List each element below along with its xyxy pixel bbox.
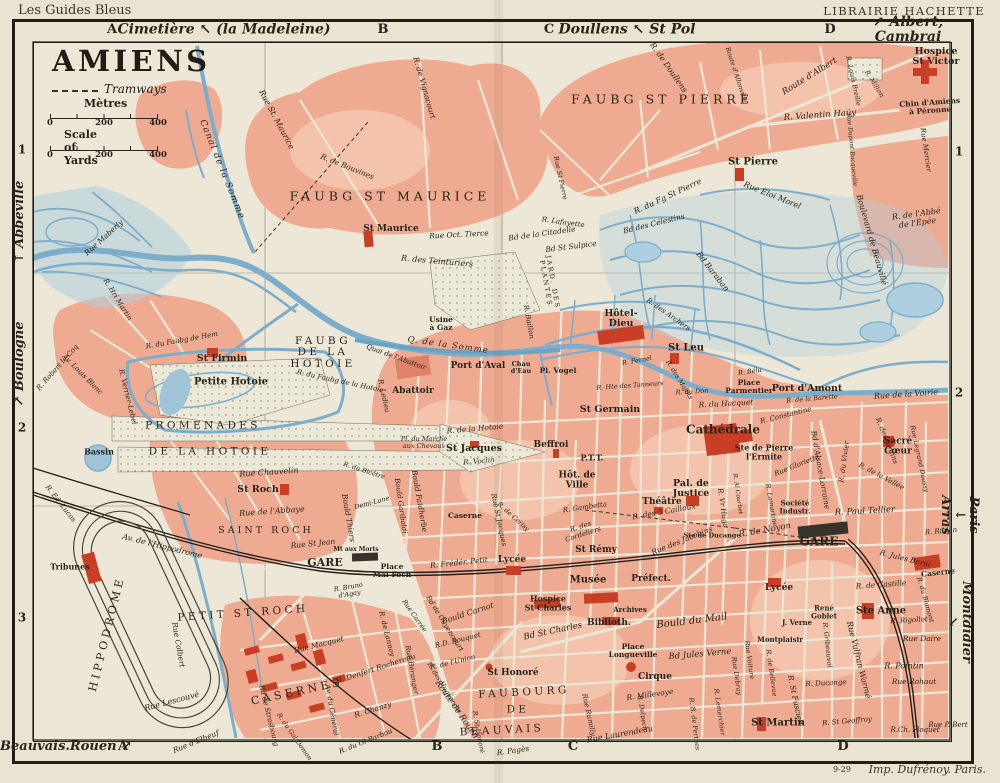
- map-label: Hospice St Charles: [525, 594, 571, 611]
- map-label: René Goblet: [811, 604, 837, 619]
- map-label: Rue Dupont Bacqueville: [845, 113, 858, 187]
- map-label: Rue Carrée: [400, 599, 427, 634]
- map-label: R. Jules Barni: [879, 549, 932, 569]
- map-label: CASERNES: [250, 676, 344, 707]
- map-label: Place Parmentier: [725, 379, 772, 395]
- map-label: JARD. DES PLANTES: [537, 255, 560, 311]
- map-label: R. Milton: [863, 69, 885, 99]
- map-label: Rue Daire: [903, 635, 941, 643]
- map-label: R. de la Vallée: [857, 462, 905, 492]
- map-label: R. B. de Perthes: [687, 697, 700, 750]
- map-label: R. Delpech: [636, 695, 648, 732]
- map-label: FAUBG ST PIERRE: [571, 92, 753, 106]
- grid-letter: D: [837, 740, 848, 754]
- map-label: Rue Béranger: [403, 645, 419, 695]
- scale-tick: 0: [47, 118, 53, 128]
- map-label: R. de Lannoy: [377, 610, 396, 657]
- map-label: R. Gribeauval: [821, 622, 833, 668]
- map-label: Petite Hotoie: [194, 378, 268, 389]
- map-label: R. Ed. Lucas: [43, 484, 76, 524]
- map-label: Bd d'Alsace-Lorraine: [809, 430, 831, 510]
- map-label: R. St Fuscien: [786, 674, 804, 725]
- map-label: Chau d'Eau: [511, 361, 531, 375]
- metres-label: Mètres: [84, 97, 127, 110]
- map-label: St Pierre: [728, 158, 778, 169]
- map-label: Sacré Cœur: [884, 437, 912, 456]
- map-label: Ste Anne: [856, 607, 906, 618]
- tramway-legend-symbol: [52, 90, 98, 92]
- map-label: Rue Macquet: [293, 635, 344, 655]
- map-label: Usine à Gaz: [429, 316, 453, 332]
- map-label: R. Valentin Haüy: [784, 109, 857, 123]
- map-label: DE: [507, 704, 530, 715]
- grid-letter: D: [824, 23, 835, 37]
- map-label: Bould Garibaldi: [392, 478, 407, 534]
- map-label: R. du Bicêtre: [342, 461, 385, 481]
- map-label: J. Verne: [782, 619, 812, 627]
- map-label: Rue St. Maurice: [257, 89, 296, 151]
- map-label: BEAUVAIS: [460, 723, 545, 739]
- map-label: Hospice St Victor: [913, 47, 960, 68]
- map-label: R. du Hacquet: [698, 399, 753, 410]
- map-label: R. de Castille: [855, 579, 906, 591]
- map-label: R. Pointin: [884, 663, 924, 672]
- map-label: Bd St Sulpice: [545, 240, 597, 254]
- map-label: Rue Rumilly: [580, 693, 596, 737]
- map-label: Rue Lescouvé: [144, 691, 201, 714]
- map-label: R. des Majots: [664, 359, 694, 401]
- grid-letter: B: [432, 740, 443, 754]
- map-label: Rue de l'Abbaye: [239, 505, 305, 518]
- map-label: Pl. du Marché aux Chevaux: [401, 436, 447, 450]
- map-label: Société Industr.: [779, 499, 810, 514]
- map-label: Rue P. Bert: [928, 722, 967, 730]
- map-label: St Germain: [580, 405, 640, 415]
- map-label: R. Fernel: [621, 355, 652, 367]
- map-label: Musée: [570, 576, 607, 587]
- map-label: R. Ledieu: [376, 379, 390, 414]
- map-label: Préfect.: [631, 575, 671, 585]
- scale-tick: 400: [149, 118, 167, 128]
- map-label: R. du Fg St Pierre: [633, 178, 703, 217]
- map-label: R. de la Hotoie: [446, 422, 503, 435]
- map-label: Av. du Général: [323, 684, 339, 736]
- map-label: Biblioth.: [587, 619, 631, 629]
- map-label: GARE: [307, 557, 342, 569]
- map-label: Rue Legrand Daussy: [908, 425, 929, 493]
- map-label: R. des Archers: [645, 297, 692, 333]
- map-label: Archives: [613, 606, 647, 614]
- map-label: Cathédrale: [686, 424, 760, 437]
- map-label: Rue Rohaut: [892, 678, 937, 686]
- grid-letter: B: [378, 23, 389, 37]
- map-label: St Roch: [237, 485, 278, 495]
- map-label: Rue Laurendeau: [586, 725, 654, 745]
- map-label: R. Lafayette: [541, 216, 585, 229]
- map-label: R. Chanzy: [353, 700, 392, 720]
- map-label: St Honoré: [487, 669, 538, 679]
- map-label: R. Constantine: [760, 406, 813, 426]
- map-label: Hôtel- Dieu: [604, 309, 637, 330]
- edge-destination: Doullens ↖ St Pol: [559, 22, 696, 37]
- map-label: DE LA HOTOIE: [149, 446, 272, 457]
- scale-tick: 200: [95, 118, 113, 128]
- map-label: Caserne: [448, 512, 482, 520]
- map-label: R. Paul Tellier: [835, 506, 896, 518]
- map-label: Q. de la Somme: [407, 336, 489, 356]
- grid-letter: A: [107, 23, 117, 37]
- edge-destination: ↗ Boulogne: [13, 322, 27, 407]
- map-label: Rue d'Elbeuf: [172, 729, 220, 755]
- map-label: Hôt. de Ville: [559, 471, 596, 490]
- edge-destination: Paris ↓ Arras: [938, 495, 980, 536]
- map-label: Rue St Pierre: [552, 156, 568, 201]
- map-label: Bd St Charles: [523, 621, 583, 642]
- edge-destination: Montdidier ↘: [945, 581, 973, 663]
- scale-tick: 0: [47, 150, 53, 160]
- map-label: Rue de la Voirie: [874, 388, 939, 401]
- map-label: R. des 3 Cailloux: [632, 502, 696, 521]
- map-label: R. St Honoré: [471, 710, 485, 753]
- map-label: Rue Oct. Tierce: [429, 229, 489, 240]
- map-label: Rue Chauvelin: [239, 467, 299, 480]
- map-label: Route d'Albert: [781, 56, 839, 97]
- edge-destination: ↗ Albert, Cambrai: [862, 15, 954, 45]
- map-label: Ste de Pierre l'Ermite: [735, 443, 793, 460]
- map-label: Bassin: [84, 448, 114, 457]
- map-label: Bd Baraban: [694, 251, 730, 294]
- map-label: Rue des Jacobins: [650, 525, 713, 557]
- map-label: Bd Jules Verne: [668, 648, 732, 663]
- map-label: R. Louis Breille: [844, 55, 861, 106]
- yards-scalebar: 0 200 400: [50, 142, 158, 156]
- map-label: Pl. Vogel: [540, 367, 577, 375]
- map-label: R. Lemerchier: [712, 688, 726, 736]
- map-label: Bd de la Citadelle: [508, 225, 576, 242]
- map-label: Canal de la Somme: [197, 119, 246, 221]
- map-label: Mt aux Morts: [333, 547, 378, 553]
- map-label: Quai de l'Abattoir: [365, 344, 427, 373]
- map-label: Bd de Guyencourt: [424, 595, 464, 653]
- map-label: R. Riolan: [925, 527, 958, 537]
- map-label: PROMENADES: [145, 420, 261, 431]
- map-label: R.Ch. Floquet: [890, 727, 939, 735]
- map-label: FAUBG DE LA HOTOIE: [290, 336, 355, 370]
- map-label: Pal. de Justice: [673, 479, 710, 500]
- map-label: R. du Blamont: [915, 576, 935, 623]
- map-label: R. du Don: [675, 388, 708, 397]
- map-label: Rue Mercier: [918, 127, 932, 172]
- map-label: R. de Bellevue: [764, 649, 778, 697]
- map-label: R. des Huguenots: [426, 661, 463, 714]
- map-label: R. Baillon: [521, 304, 534, 339]
- map-label: Rue Vulfran Warmé: [844, 621, 872, 700]
- map-label: St Martin: [751, 719, 805, 730]
- map-label: SAINT ROCH: [218, 526, 314, 536]
- map-label: R. des Jardins: [873, 417, 898, 466]
- map-label: R. Bélu: [738, 367, 763, 377]
- grid-letter: C: [568, 740, 578, 754]
- map-label: Demi-Lune: [354, 495, 391, 511]
- grid-number: 1: [955, 146, 963, 159]
- map-label: R. Hri Martin: [101, 278, 133, 323]
- map-label: Port d'Amont: [772, 384, 843, 394]
- map-label: Théâtre: [642, 498, 681, 508]
- map-label: Rue St Jacques: [489, 493, 508, 547]
- map-label: Rue Colbert: [170, 622, 186, 669]
- map-label: R. de Noyon: [738, 522, 792, 540]
- map-label: FAUBOURG: [478, 685, 570, 701]
- map-label: R. Frédér. Petit: [430, 556, 489, 570]
- map-label: Tribunes: [50, 563, 89, 572]
- map-label: St Jacques: [446, 444, 502, 454]
- map-label: R. Millevoye: [626, 688, 674, 703]
- map-label: Caserne: [921, 567, 956, 579]
- map-label: R. Al Courbet: [731, 473, 743, 515]
- map-label: R. Rigollot: [890, 616, 928, 625]
- map-label: R. du Vivier: [838, 441, 851, 483]
- map-label: R. Voclin: [463, 457, 495, 467]
- map-label: R. du Faubg de Hem: [145, 331, 218, 351]
- map-label: Cirque: [638, 673, 672, 683]
- metres-scalebar: 0 200 400: [50, 110, 158, 124]
- map-label: Bould Faidherbe: [410, 469, 429, 532]
- map-label: Route de Rouen: [433, 679, 480, 741]
- map-label: Rue St Jean: [290, 538, 335, 551]
- map-label: R. St Geoffroy: [822, 716, 872, 728]
- map-label: Rue Debray: [730, 656, 742, 695]
- map-label: R. Ducange: [805, 679, 846, 689]
- map-label: Abattoir: [392, 387, 434, 397]
- map-label: Av. Louis Blanc: [60, 353, 103, 396]
- map-label: St Leu: [668, 344, 704, 355]
- map-label: Beffroi: [534, 441, 569, 451]
- map-label: R. du Gal Domon: [275, 712, 313, 762]
- map-label: St Firmin: [197, 354, 247, 364]
- map-label: R. Pagès: [496, 745, 529, 758]
- map-label: R. de Cerisy: [496, 501, 531, 533]
- map-label: R. de Vignacourt: [411, 56, 436, 120]
- map-label: St Maurice: [363, 225, 419, 235]
- map-label: R. Lamartine: [764, 483, 778, 527]
- map-label: R. Robert le Coq: [35, 344, 80, 393]
- grid-number: 1: [18, 144, 26, 157]
- tramway-legend-label: Tramways: [104, 82, 167, 96]
- map-label: R. Vr Hugo: [716, 488, 729, 528]
- map-label: R. des Cordeliers: [562, 518, 602, 544]
- map-label: R. de Bouvines: [319, 153, 375, 182]
- map-label: R. Verrier-Lebel: [116, 369, 137, 426]
- map-label: Place Mal Foch: [373, 563, 412, 579]
- map-label: Montplaisir: [757, 636, 803, 644]
- map-label: Bd de Strasbourg: [257, 685, 279, 747]
- map-label: Lycée: [498, 556, 526, 566]
- map-label: Ste de Ducange: [684, 532, 741, 539]
- edge-destination: ↑ Abbeville: [13, 181, 27, 264]
- grid-number: 2: [18, 422, 26, 435]
- map-label: FAUBG ST MAURICE: [290, 189, 491, 203]
- map-label: HIPPODROME: [87, 575, 127, 693]
- map-label: R. de la Barette: [786, 393, 838, 405]
- map-label: GARE: [800, 536, 839, 549]
- map-label: St Rémy: [575, 546, 617, 556]
- scale-tick: 200: [95, 150, 113, 160]
- map-label: R. de l'Abbé de l'Épée: [892, 207, 943, 231]
- grid-number: 3: [18, 612, 26, 625]
- map-label: Bould du Mail: [656, 612, 728, 631]
- grid-letter: A: [118, 740, 128, 754]
- map-label: R. de Doullens: [648, 41, 689, 94]
- map-label: R. du Faubg de la Hotoie: [296, 369, 384, 395]
- map-label: R. du Gl Barbou: [338, 728, 394, 756]
- map-label: P.T.T.: [581, 454, 604, 463]
- map-label: Port d'Aval: [451, 362, 506, 372]
- map-label: R. des Teinturiers: [401, 255, 474, 270]
- map-plate: Les Guides Bleus LIBRAIRIE HACHETTE 9-29…: [0, 0, 1000, 783]
- map-label: Boulevard de Beauvillé: [854, 194, 888, 287]
- map-label: Bould Carnot: [441, 602, 495, 627]
- map-label: R. Gambetta: [562, 501, 607, 515]
- map-label: Rue Gloriette: [773, 454, 820, 479]
- map-label: Place Longueville: [609, 643, 658, 659]
- edge-destination: Beauvais.Rouen ↗: [0, 740, 132, 754]
- map-label: PETIT ST ROCH: [177, 604, 309, 624]
- map-label: R. de l'Union: [430, 654, 477, 672]
- map-label: Av. de l'Hippodrome: [121, 533, 203, 561]
- map-label: Bould Thiers: [340, 493, 356, 542]
- map-title: AMIENS: [52, 44, 211, 78]
- map-label: Route d'Allonville: [724, 46, 749, 104]
- scale-tick: 400: [149, 150, 167, 160]
- grid-number: 2: [955, 387, 963, 400]
- map-label: R. Bruno d'Agay: [333, 582, 364, 601]
- map-label: Bd des Célestins: [622, 212, 685, 235]
- map-label: Rue Voiture: [743, 640, 755, 679]
- map-label: Rue Maberly: [83, 219, 125, 258]
- map-label: Rue Eloi Morel: [742, 181, 802, 212]
- map-label: R. Hte des Tanneurs: [596, 380, 664, 392]
- map-label: R.D. Bouquet: [434, 632, 482, 651]
- map-label: Chin d'Amiens à Péronne: [899, 97, 961, 117]
- grid-letter: C: [544, 23, 554, 37]
- edge-destination: Cimetière ↖ (la Madeleine): [117, 22, 330, 37]
- map-label: R. Denfert Rochereau: [335, 652, 416, 685]
- map-label: Lycée: [765, 584, 793, 594]
